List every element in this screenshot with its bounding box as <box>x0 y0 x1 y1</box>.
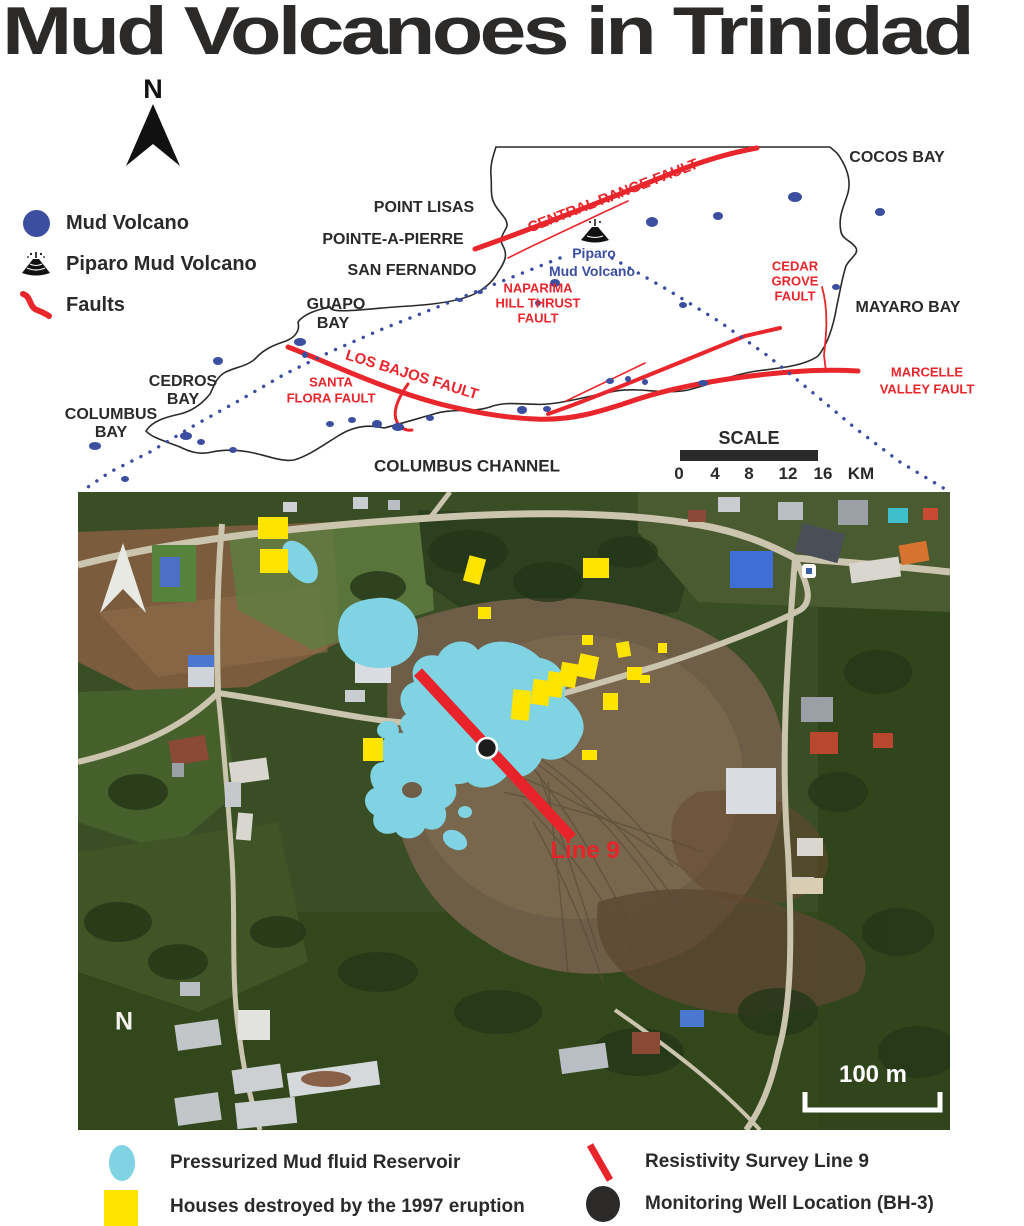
scale-tick: 0 <box>674 464 683 484</box>
map-label: CEDROS <box>149 374 217 390</box>
destroyed-house-marker <box>616 641 631 658</box>
scale-100m-label: 100 m <box>839 1061 907 1089</box>
map-label: NAPARIMA <box>503 282 572 295</box>
map-label: HILL THRUST <box>496 297 581 310</box>
destroyed-house-marker <box>582 635 593 645</box>
map-label: POINT LISAS <box>374 200 474 216</box>
map-label: BAY <box>317 316 349 332</box>
destroyed-house-marker <box>627 667 642 680</box>
map-label: FAULT <box>775 290 816 303</box>
map-label: COLUMBUS CHANNEL <box>374 458 560 475</box>
destroyed-house-marker <box>260 549 288 573</box>
legend-item-destroyed-houses: Houses destroyed by the 1997 eruption <box>104 1188 525 1226</box>
destroyed-house-marker <box>658 643 667 653</box>
scale-title: SCALE <box>718 428 779 449</box>
scale-tick: 8 <box>744 464 753 484</box>
satellite-image: Line 9 100 m N <box>78 492 950 1130</box>
mud-volcano-dot <box>832 284 840 290</box>
mud-volcano-dot <box>698 380 708 386</box>
legend-item-monitoring-well: Monitoring Well Location (BH-3) <box>582 1183 934 1225</box>
map-label: BAY <box>167 392 199 408</box>
mud-volcano-dot <box>679 302 687 308</box>
legend-item-reservoir: Pressurized Mud fluid Reservoir <box>104 1143 460 1183</box>
mud-volcano-dot <box>372 420 382 428</box>
scale-tick: 16 <box>814 464 833 484</box>
mud-volcano-dot <box>180 432 192 440</box>
destroyed-house-marker <box>258 517 288 539</box>
map-label: COCOS BAY <box>849 150 944 166</box>
map-label: CEDAR <box>772 260 818 273</box>
mud-volcano-dot <box>517 406 527 414</box>
destroyed-house-marker <box>582 750 597 760</box>
mud-volcano-dot <box>713 212 723 220</box>
monitoring-well-icon <box>582 1183 624 1225</box>
survey-line-icon <box>582 1140 622 1184</box>
mud-volcano-dot <box>294 338 306 346</box>
map-label: COLUMBUS <box>65 407 157 423</box>
mud-volcano-dot <box>392 423 404 431</box>
map-label: SAN FERNANDO <box>348 263 477 279</box>
scale-tick: 12 <box>779 464 798 484</box>
mud-volcano-dot <box>646 217 658 227</box>
mud-volcano-dot <box>326 421 334 427</box>
mud-volcano-dot <box>213 357 223 365</box>
line9-label: Line 9 <box>550 837 619 865</box>
mud-volcano-dot <box>477 290 483 294</box>
legend-label: Houses destroyed by the 1997 eruption <box>170 1196 525 1218</box>
destroyed-house-marker <box>603 693 618 710</box>
reservoir-icon <box>104 1143 144 1183</box>
figure-page: Mud Volcanoes in Trinidad N Mud Volcano <box>0 0 1024 1226</box>
map-pin-icon <box>802 564 816 578</box>
scale-unit: KM <box>848 464 874 484</box>
mud-volcano-dot <box>348 417 356 423</box>
mud-volcano-dot <box>121 476 129 482</box>
destroyed-house-marker <box>640 675 650 683</box>
fault-lines <box>288 148 858 430</box>
figure-legend: Pressurized Mud fluid Reservoir Resistiv… <box>0 1130 1024 1226</box>
map-label: GUAPO <box>307 297 366 313</box>
map-label: SANTA <box>309 376 353 389</box>
destroyed-house-icon <box>104 1188 144 1226</box>
destroyed-house-marker <box>583 558 609 578</box>
map-label: MARCELLE <box>891 366 963 379</box>
destroyed-house-marker <box>511 689 532 720</box>
satellite-north-label: N <box>115 1008 133 1037</box>
map-label: Mud Volcano <box>549 264 635 278</box>
scale-bar <box>680 450 818 461</box>
map-label: Piparo <box>572 246 616 260</box>
map-label: VALLEY FAULT <box>880 383 975 396</box>
mud-volcano-dot <box>788 192 802 202</box>
scale-tick: 4 <box>710 464 719 484</box>
mud-volcano-dot <box>89 442 101 450</box>
mud-volcano-dot <box>543 406 551 412</box>
monitoring-well-marker <box>477 738 497 758</box>
map-label: GROVE <box>772 275 819 288</box>
mud-volcano-dot <box>197 439 205 445</box>
map-label: FAULT <box>518 312 559 325</box>
destroyed-house-marker <box>478 607 491 619</box>
mud-volcano-dot <box>302 352 308 358</box>
mud-volcano-dot <box>642 379 648 385</box>
legend-item-survey-line: Resistivity Survey Line 9 <box>582 1140 869 1184</box>
map-label: POINTE-A-PIERRE <box>322 232 463 248</box>
piparo-map-icon <box>581 219 609 243</box>
legend-label: Pressurized Mud fluid Reservoir <box>170 1152 460 1174</box>
mud-volcano-dot <box>606 378 614 384</box>
mud-volcano-dot <box>229 447 237 453</box>
legend-label: Resistivity Survey Line 9 <box>645 1151 869 1173</box>
map-label: BAY <box>95 425 127 441</box>
map-scale: SCALE 0 4 8 12 16 KM <box>660 428 890 480</box>
mud-volcano-dot <box>426 415 434 421</box>
map-label: FLORA FAULT <box>287 392 376 405</box>
mud-volcano-dot <box>875 208 885 216</box>
mud-volcano-dot <box>457 298 463 302</box>
map-label: MAYARO BAY <box>856 300 961 316</box>
mud-volcano-dot <box>625 376 631 382</box>
destroyed-house-marker <box>363 738 383 761</box>
satellite-canvas <box>78 492 950 1130</box>
legend-label: Monitoring Well Location (BH-3) <box>645 1193 934 1215</box>
